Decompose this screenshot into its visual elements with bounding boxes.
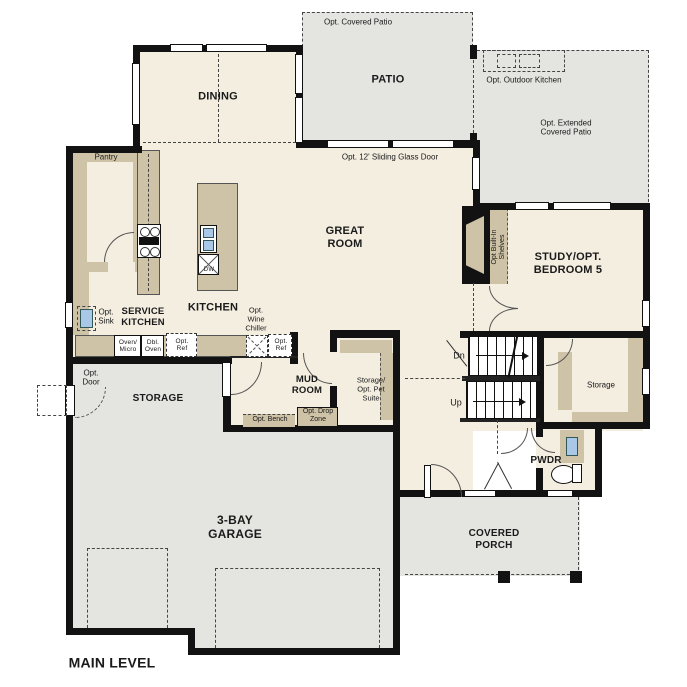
dining-label: DINING (198, 91, 238, 104)
opt-extended-patio-label: Opt. Extended Covered Patio (540, 119, 591, 138)
window (132, 63, 140, 125)
wall (66, 146, 73, 364)
floor-plan: Oven/ Micro Dbl. Oven Opt. Ref Opt. Ref … (0, 0, 687, 687)
pantry-label: Pantry (94, 152, 117, 161)
closet-line (497, 420, 498, 454)
window (642, 300, 650, 327)
mud-door-leaf (222, 362, 231, 397)
storage-right-counter (628, 336, 643, 424)
up-label: Up (450, 398, 462, 409)
wall (330, 338, 337, 352)
wall (66, 628, 193, 635)
garage-label: 3-BAY GARAGE (208, 513, 262, 541)
wall (330, 330, 400, 338)
storage-bottom-counter (572, 412, 628, 422)
window (170, 44, 203, 52)
window (472, 157, 480, 190)
window (295, 54, 303, 94)
closet-bifold-door (497, 462, 512, 489)
pet-suite-counter (340, 340, 392, 353)
opt-door-stoop (37, 385, 67, 416)
door-swing (501, 428, 528, 454)
fireplace-insert (466, 216, 484, 274)
window (65, 302, 73, 328)
burner (140, 247, 150, 257)
window (553, 202, 611, 210)
sink-basin (203, 240, 214, 251)
sliding-glass-door (392, 140, 454, 148)
oven-micro-label: Oven/ Micro (119, 340, 137, 354)
garage-door-opening (215, 568, 380, 648)
service-kitchen-label: SERVICE KITCHEN (121, 306, 165, 328)
window (295, 97, 303, 143)
wine-chiller-appliance (246, 335, 268, 357)
stair-arrow-dn (476, 355, 522, 356)
toilet-tank (572, 464, 582, 483)
opt-wine-chiller-label: Opt. Wine Chiller (245, 307, 266, 334)
opt-shelves-label: Opt Built-In Shelves (491, 229, 508, 264)
wall (470, 45, 477, 59)
counter-centerline (148, 154, 149, 291)
study-label: STUDY/OPT. BEDROOM 5 (534, 251, 602, 277)
opt-sink-label: Opt. Sink (98, 308, 114, 327)
kitchen-label: KITCHEN (188, 302, 238, 315)
door-swing (531, 428, 555, 453)
ceiling-line (143, 142, 296, 143)
patio-label: PATIO (372, 74, 405, 87)
wall (188, 648, 400, 655)
stairs-up (466, 381, 537, 419)
pet-suite-label: Storage/ Opt. Pet Suite (357, 377, 385, 404)
cooktop (137, 224, 161, 258)
stair-arrow-up (473, 401, 519, 402)
burner (150, 227, 160, 237)
opt-sink-basin (80, 309, 93, 328)
wall (66, 357, 232, 364)
opt-door-label: Opt. Door (82, 369, 99, 388)
outdoor-kitchen-box (519, 54, 540, 68)
dbl-oven-appliance: Dbl. Oven (141, 335, 164, 357)
opt-ref-appliance: Opt. Ref (166, 333, 197, 357)
opt-drop-zone-label: Opt. Drop Zone (303, 408, 333, 425)
x-glyph (246, 335, 268, 357)
cooktop-band (139, 237, 159, 245)
garage-door-opening (87, 548, 168, 628)
island-sink (200, 225, 217, 253)
window (642, 368, 650, 395)
sliding-door-label: Opt. 12' Sliding Glass Door (342, 152, 438, 161)
dishwasher: DW (198, 254, 219, 275)
oven-micro-appliance: Oven/ Micro (114, 335, 141, 357)
main-level-label: MAIN LEVEL (69, 655, 156, 672)
wall (470, 133, 477, 147)
sink-basin (203, 228, 214, 238)
hall-line (473, 283, 474, 331)
porch-post (570, 571, 582, 583)
outdoor-kitchen-box (497, 54, 516, 68)
pwdr-sink (566, 437, 578, 456)
closet-bifold-door (484, 463, 499, 490)
pantry-door-opening (108, 262, 135, 272)
opt-ref-label: Opt. Ref (274, 339, 287, 353)
sliding-glass-door (327, 140, 389, 148)
pwdr-label: PWDR (530, 455, 561, 467)
window (464, 490, 496, 497)
opt-bench-label: Opt. Bench (252, 416, 287, 424)
window (206, 44, 267, 52)
storage-stairs-label: Storage (587, 380, 615, 389)
wall (536, 468, 543, 494)
wall (66, 415, 73, 635)
dw-label: DW (204, 267, 214, 273)
porch-edge (578, 497, 579, 575)
wall (595, 429, 602, 497)
wall (393, 425, 400, 655)
dn-label: Dn (453, 351, 465, 362)
opt-covered-patio-label: Opt. Covered Patio (324, 17, 392, 26)
storage-garage-label: STORAGE (133, 393, 184, 405)
porch-post (498, 571, 510, 583)
window (547, 490, 573, 497)
wall (393, 330, 400, 430)
window (515, 202, 549, 210)
opt-ref-label: Opt. Ref (175, 339, 188, 353)
wall (66, 364, 73, 385)
opt-ref-appliance: Opt. Ref (268, 334, 292, 357)
patio-dash (473, 60, 474, 133)
mud-room-label: MUD ROOM (292, 374, 322, 396)
opt-outdoor-kitchen-label: Opt. Outdoor Kitchen (486, 75, 561, 84)
porch-edge (405, 574, 580, 575)
covered-porch-label: COVERED PORCH (469, 528, 520, 552)
front-door-leaf (424, 465, 431, 498)
patio-area (300, 45, 477, 147)
burner (150, 247, 160, 257)
burner (140, 227, 150, 237)
great-room-label: GREAT ROOM (326, 225, 365, 251)
hall-line (405, 378, 465, 379)
dbl-oven-label: Dbl. Oven (145, 340, 161, 354)
